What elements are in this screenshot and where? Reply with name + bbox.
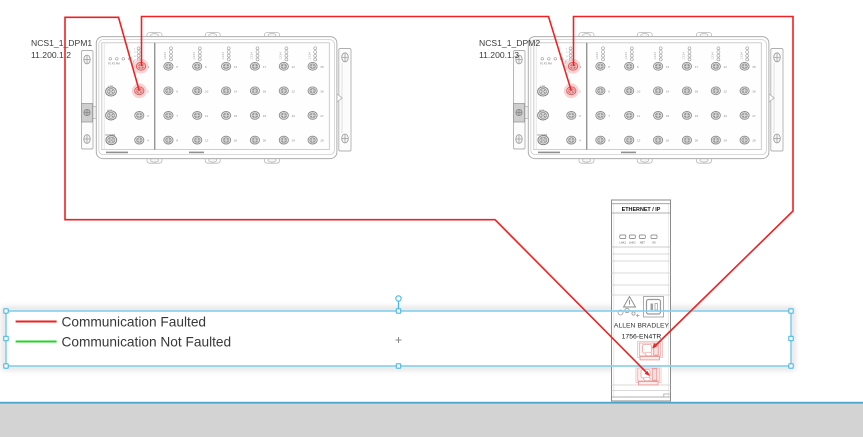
- svg-text:11.200.1.3: 11.200.1.3: [479, 50, 519, 60]
- svg-text:1756-EN4TR: 1756-EN4TR: [622, 334, 662, 341]
- svg-text:LNK2: LNK2: [629, 241, 636, 245]
- svg-text:ETHERNET / IP: ETHERNET / IP: [622, 207, 661, 213]
- svg-text:Communication Not Faulted: Communication Not Faulted: [62, 334, 232, 349]
- svg-text:OK: OK: [652, 241, 656, 245]
- svg-text:NCS1_1_DPM1: NCS1_1_DPM1: [31, 38, 92, 48]
- svg-text:LNK1: LNK1: [620, 241, 627, 245]
- svg-text:NET: NET: [640, 241, 646, 245]
- svg-text:ALLEN BRADLEY: ALLEN BRADLEY: [614, 323, 670, 330]
- svg-text:Communication Faulted: Communication Faulted: [62, 314, 207, 329]
- svg-text:NCS1_1_DPM2: NCS1_1_DPM2: [479, 38, 540, 48]
